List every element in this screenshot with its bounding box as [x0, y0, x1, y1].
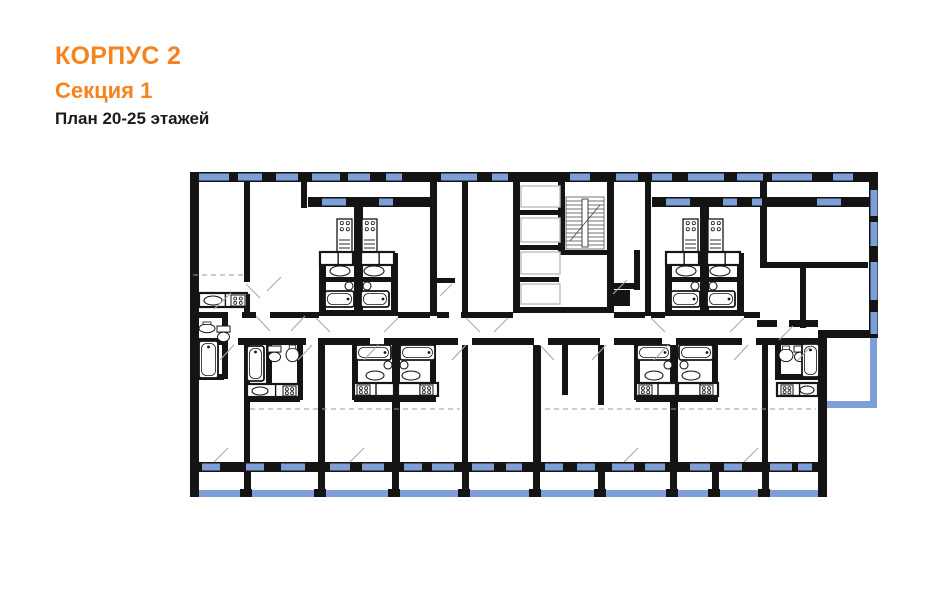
wall-segment [462, 345, 468, 462]
washbasin-tap [289, 345, 296, 349]
wall-segment [533, 345, 541, 462]
wall-segment [190, 172, 199, 497]
wall-segment [462, 182, 468, 316]
wall-segment [388, 489, 400, 497]
wall-segment [513, 245, 559, 250]
bathtub-drain [664, 351, 667, 354]
toilet-bowl [218, 332, 230, 342]
wall-segment [529, 489, 541, 497]
kitchen-counter [707, 252, 740, 265]
sink [402, 371, 420, 380]
window-segment [817, 199, 841, 206]
wall-segment [594, 489, 606, 497]
bathtub-drain [706, 351, 709, 354]
door-swing-line [440, 284, 452, 296]
window-segment [871, 190, 878, 216]
door-swing-line [744, 448, 758, 462]
round-sink [384, 361, 392, 369]
window-segment [348, 174, 370, 181]
round-sink [400, 361, 408, 369]
wall-segment [762, 345, 768, 462]
window-segment [833, 174, 853, 181]
window-segment [276, 174, 298, 181]
door-swing-line [651, 318, 665, 332]
sink [710, 266, 730, 276]
door-swing-line [730, 318, 744, 332]
balcony-railing [199, 490, 827, 497]
window-segment [199, 174, 229, 181]
window-segment [312, 174, 340, 181]
window-segment [570, 174, 590, 181]
wall-segment [760, 262, 868, 268]
window-segment [772, 174, 812, 181]
window-segment [871, 222, 878, 246]
wall-segment [651, 312, 665, 318]
window-segment [322, 199, 346, 206]
stove [357, 385, 370, 395]
door-swing-line [256, 316, 270, 331]
washbasin-tap [783, 346, 790, 350]
wall-segment [314, 489, 326, 497]
door-swing-line [316, 318, 330, 332]
bathtub-drain [382, 298, 385, 301]
door-swing-line [350, 448, 364, 462]
elevator-car [521, 252, 560, 274]
wall-segment [458, 489, 470, 497]
wall-segment [676, 338, 742, 345]
elevator-car [521, 186, 560, 207]
wall-segment [775, 345, 781, 378]
wall-segment [270, 312, 319, 318]
bathtub-drain [207, 346, 210, 349]
wall-segment [244, 182, 250, 282]
stove [283, 386, 296, 396]
wall-segment [666, 489, 678, 497]
washbasin [199, 324, 215, 333]
wall-segment [392, 345, 400, 462]
washbasin [286, 348, 299, 362]
window-segment [238, 174, 262, 181]
window-segment [798, 464, 812, 471]
bathtub-drain [254, 351, 257, 354]
window-segment [577, 464, 595, 471]
door-swing-line [734, 345, 748, 360]
wall-segment [744, 312, 760, 318]
bathtub-drain [728, 298, 731, 301]
kitchen-counter [666, 252, 699, 265]
door-swing-line [384, 318, 398, 332]
door-swing-line [779, 326, 793, 340]
window-segment [690, 464, 710, 471]
wall-segment [667, 277, 742, 282]
wall-segment [598, 345, 604, 405]
sink [800, 386, 814, 394]
window-segment [752, 199, 762, 206]
wall-segment [708, 489, 720, 497]
toilet-tank [217, 326, 230, 332]
window-segment [616, 174, 638, 181]
wall-segment [398, 312, 430, 318]
window-segment [723, 199, 737, 206]
wall-segment [430, 278, 455, 283]
bathtub-drain [693, 298, 696, 301]
stove [420, 385, 433, 395]
wall-segment [760, 182, 767, 268]
bathtub-drain [347, 298, 350, 301]
page-background: КОРПУС 2 Секция 1 План 20-25 этажей [0, 0, 941, 600]
round-sink [709, 282, 717, 290]
washbasin [779, 349, 793, 362]
window-segment [202, 464, 220, 471]
door-swing-line [466, 318, 480, 332]
wall-segment [827, 330, 878, 338]
wall-segment [560, 250, 614, 255]
wall-segment [758, 489, 770, 497]
window-segment [645, 464, 665, 471]
window-segment [737, 174, 763, 181]
toilet-bowl [269, 352, 281, 362]
balcony-railing [870, 338, 877, 404]
window-segment [330, 464, 350, 471]
window-segment [404, 464, 422, 471]
window-segment [246, 464, 264, 471]
wall-segment [548, 338, 600, 345]
bathtub-drain [384, 351, 387, 354]
window-segment [379, 199, 393, 206]
wall-segment [757, 320, 777, 327]
wall-segment [242, 312, 256, 318]
window-segment [386, 174, 402, 181]
window-segment [770, 464, 792, 471]
wall-segment [461, 312, 513, 318]
elevator-car [521, 284, 560, 304]
window-segment [688, 174, 724, 181]
wall-segment [800, 268, 806, 328]
round-sink [345, 282, 353, 290]
stove [781, 385, 793, 395]
balcony-railing [827, 401, 877, 408]
wall-segment [318, 345, 325, 462]
window-segment [871, 262, 878, 300]
door-swing-line [624, 448, 638, 462]
wall-segment [645, 182, 651, 316]
wall-segment [222, 313, 228, 379]
wall-segment [789, 320, 818, 327]
wall-segment [321, 277, 396, 282]
wall-segment [472, 338, 534, 345]
window-segment [432, 464, 454, 471]
window-segment [492, 174, 508, 181]
elevator-car [521, 218, 560, 242]
door-swing-line [214, 448, 228, 462]
sink [682, 371, 700, 380]
window-segment [612, 464, 634, 471]
stove [231, 295, 245, 306]
wall-segment [240, 489, 252, 497]
window-segment [472, 464, 494, 471]
floorplan-svg [0, 0, 941, 600]
kitchen-counter [361, 252, 394, 265]
window-segment [506, 464, 522, 471]
door-swing-line [540, 345, 554, 360]
door-swing-line [291, 316, 305, 331]
wall-segment [318, 338, 370, 345]
window-segment [871, 312, 878, 334]
wall-segment [301, 182, 307, 208]
wall-segment [562, 345, 568, 395]
kitchen-counter [320, 252, 353, 265]
wall-segment [319, 310, 398, 316]
bathtub-drain [809, 349, 812, 352]
wall-segment [614, 312, 645, 318]
wall-segment [513, 307, 614, 313]
wall-segment [665, 310, 744, 316]
wall-segment [610, 290, 630, 306]
sink [330, 266, 350, 276]
window-segment [362, 464, 384, 471]
window-segment [441, 174, 477, 181]
round-sink [363, 282, 371, 290]
sink [364, 266, 384, 276]
wall-segment [513, 277, 559, 282]
bathtub-drain [428, 351, 431, 354]
sink [252, 387, 268, 395]
sink [645, 371, 663, 380]
stove [639, 385, 652, 395]
window-segment [281, 464, 305, 471]
wall-segment [614, 338, 662, 345]
window-segment [724, 464, 742, 471]
washbasin-tap [203, 322, 211, 324]
stove [700, 385, 713, 395]
window-segment [666, 199, 690, 206]
toilet-tank [268, 346, 281, 352]
window-segment [652, 174, 672, 181]
wall-segment [238, 338, 306, 345]
door-swing-line [494, 318, 508, 332]
wall-segment [437, 312, 449, 318]
wall-segment [513, 210, 559, 215]
round-sink [664, 361, 672, 369]
door-swing-line [267, 277, 281, 291]
wall-segment [384, 338, 458, 345]
sink [676, 266, 696, 276]
sink [366, 371, 384, 380]
round-sink [680, 361, 688, 369]
window-segment [545, 464, 563, 471]
round-sink [691, 282, 699, 290]
wall-segment [430, 283, 437, 310]
